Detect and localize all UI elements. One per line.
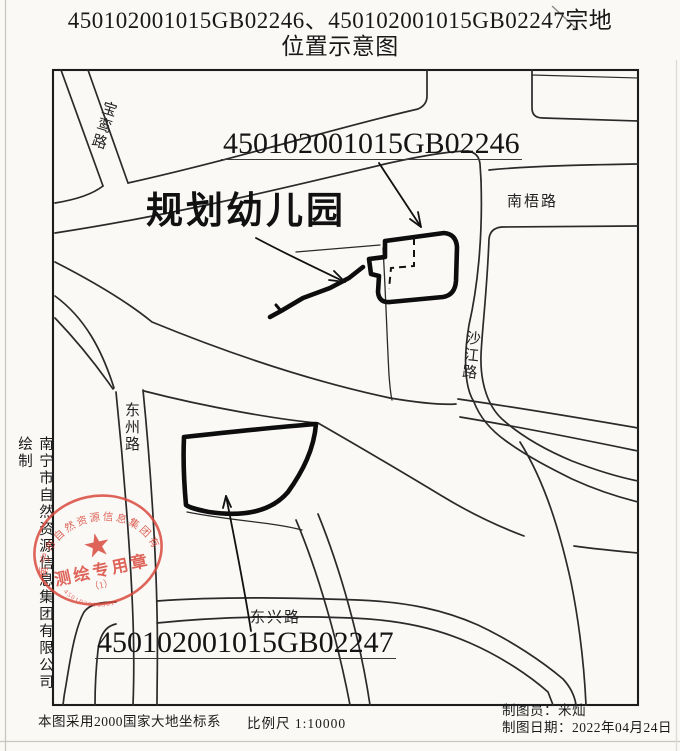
road-label-dongzhou: 东州路 bbox=[121, 402, 142, 453]
kindergarten-label: 规划幼儿园 bbox=[146, 193, 346, 231]
road-label-dongxing: 东兴路 bbox=[250, 606, 301, 627]
arrow-parcel-02247 bbox=[223, 496, 251, 631]
planned-kindergarten-boundary bbox=[270, 267, 363, 317]
arrow-kindergarten bbox=[256, 238, 345, 282]
footer-datum: 本图采用2000国家大地坐标系 bbox=[38, 710, 221, 730]
footer-drafter-block: 制图员：米灿 制图日期：2022年04月24日 bbox=[502, 703, 672, 736]
sheet-title-line2: 位置示意图 bbox=[40, 34, 640, 60]
arrow-parcel-02246 bbox=[379, 163, 421, 227]
planned-kindergarten-tip bbox=[276, 305, 281, 311]
footer-drafter: 制图员：米灿 bbox=[502, 703, 672, 720]
map-sheet: 450102001015GB02246、450102001015GB02247宗… bbox=[0, 0, 680, 751]
parcel-02246-label: 450102001015GB02246 bbox=[221, 129, 522, 160]
sheet-title: 450102001015GB02246、450102001015GB02247宗… bbox=[40, 8, 640, 60]
footer-scale: 比例尺 1:10000 bbox=[247, 712, 346, 732]
footer-date: 制图日期：2022年04月24日 bbox=[502, 720, 672, 737]
road-label-nanwu: 南梧路 bbox=[507, 190, 558, 211]
parcel-02247-label: 450102001015GB02247 bbox=[95, 628, 396, 659]
sheet-title-line1: 450102001015GB02246、450102001015GB02247宗… bbox=[40, 8, 640, 34]
parcel-02246-internal-dashed-line bbox=[389, 238, 414, 289]
parcel-02247-boundary bbox=[184, 424, 316, 514]
survey-seal: 南宁市自然资源信息集团有限公司 ★ 测绘专用章 （1） 450103016381 bbox=[16, 484, 186, 624]
